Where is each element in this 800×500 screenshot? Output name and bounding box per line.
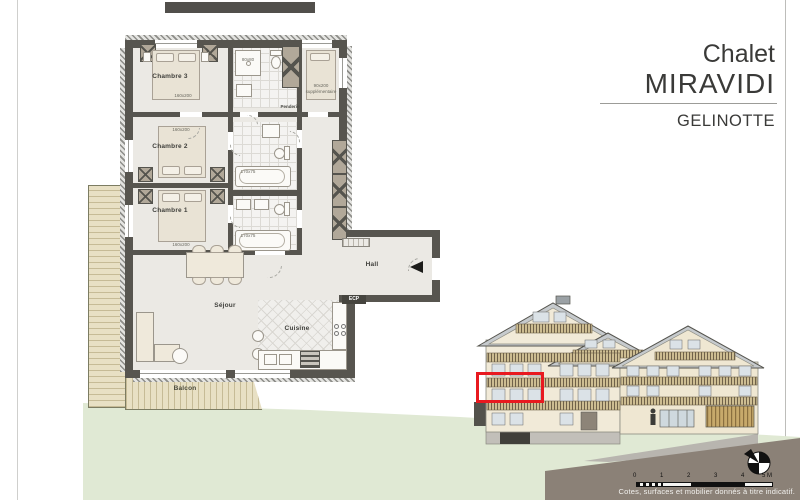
sheet-right-border [785, 0, 786, 500]
pillow [156, 53, 174, 62]
timber-post [138, 167, 153, 182]
wall-insulation-south [133, 378, 355, 382]
dining-chair [228, 245, 242, 253]
dining-chair [192, 245, 206, 253]
window-chambre1 [125, 205, 133, 237]
window-chambre3 [155, 40, 197, 48]
pillow [162, 166, 180, 175]
room-label-chambre2: Chambre 2 [140, 144, 200, 151]
room-label-cuisine: Cuisine [272, 326, 322, 333]
scale-bar-segment [663, 483, 691, 486]
timber-post [138, 189, 153, 204]
room-label-chambre3: Chambre 3 [140, 74, 200, 81]
plan-sheet: Balcon [0, 0, 800, 500]
scale-tick-1: 1 [660, 473, 663, 479]
bathtub-1-size: 170x75 [236, 170, 260, 175]
wall-kitchen-east [347, 302, 355, 370]
dining-chair [210, 245, 224, 253]
pillow [162, 193, 180, 202]
pouf [252, 330, 264, 342]
cooktop-burner [341, 324, 346, 329]
wall-hall-top [339, 230, 440, 237]
scale-bar-segment [691, 483, 745, 486]
tech-box-label: ECP [349, 296, 359, 302]
bed-size-chambre1: 160x200 [166, 243, 196, 248]
room-label-hall: Hall [352, 262, 392, 269]
disclaimer: Cotes, surfaces et mobilier donnés à tit… [555, 487, 795, 496]
room-label-sejour: Séjour [200, 303, 250, 310]
wall-bath-divider [233, 190, 297, 196]
project-title-line2: MIRAVIDI [560, 68, 775, 100]
scale-tick-4: 4 [741, 473, 744, 479]
timber-post [210, 189, 225, 204]
wall-wc-left [228, 48, 233, 112]
cropped-structure-bar [165, 2, 315, 13]
cooktop-burner [341, 331, 346, 336]
bed-size-chambre3: 160x200 [168, 94, 198, 99]
penderie-label: Penderie [270, 105, 310, 110]
scale-tick-0: 0 [633, 473, 636, 479]
extra-bed-size: 90x200 [304, 84, 338, 89]
scale-tick-2: 2 [687, 473, 690, 479]
room-label-chambre1: Chambre 1 [140, 208, 200, 215]
pillow [184, 193, 202, 202]
cooktop-burner [334, 331, 339, 336]
tech-box: ECP [342, 295, 366, 304]
pillow [178, 53, 196, 62]
nightstand [143, 52, 151, 62]
oven [300, 351, 320, 368]
wall-hall-right-lower [432, 280, 440, 302]
sofa [136, 312, 154, 362]
timber-post [332, 174, 347, 207]
cooktop-burner [334, 324, 339, 329]
kitchen-sink [279, 354, 292, 365]
scale-tick-5: 5 M [762, 473, 772, 479]
room-label-balcon: Balcon [160, 386, 210, 393]
scale-bar-segment [745, 483, 772, 486]
extra-bed-note: supplémentaire [302, 90, 340, 95]
timber-post [332, 140, 347, 174]
window-sejour-bay [140, 370, 226, 378]
wall-hall-right-upper [432, 230, 440, 258]
toilet-bowl [271, 56, 281, 69]
window-chambre2 [125, 140, 133, 172]
scale-tick-3: 3 [714, 473, 717, 479]
washbasin [236, 84, 252, 97]
pillow [310, 53, 330, 61]
kitchen-sink [264, 354, 277, 365]
toilet-bowl [274, 204, 285, 215]
nightstand [201, 52, 209, 62]
door-opening-extra-room [308, 112, 328, 117]
timber-post [282, 46, 300, 88]
window-extra-room [302, 40, 332, 48]
project-title-line1: Chalet [560, 40, 775, 69]
sheet-left-border [17, 0, 18, 500]
coffee-table [172, 348, 188, 364]
wall-insulation-east [347, 46, 352, 230]
hall-closet [342, 238, 370, 247]
timber-post [210, 167, 225, 182]
title-divider [600, 103, 777, 104]
door-opening-bath2 [297, 210, 302, 228]
shower-size: 80x80 [237, 58, 259, 63]
window-east [339, 58, 347, 88]
window-cuisine-bay [235, 370, 290, 378]
timber-post [332, 207, 347, 240]
dining-table [186, 252, 244, 278]
unit-location-highlight [476, 372, 544, 403]
pillow [184, 166, 202, 175]
bathtub-2-size: 170x75 [236, 234, 260, 239]
wall-ch2-ch1 [133, 183, 228, 188]
washbasin [254, 199, 269, 210]
washbasin [262, 124, 280, 138]
unit-name: GELINOTTE [560, 112, 775, 131]
scale-bar-segment [637, 483, 663, 486]
